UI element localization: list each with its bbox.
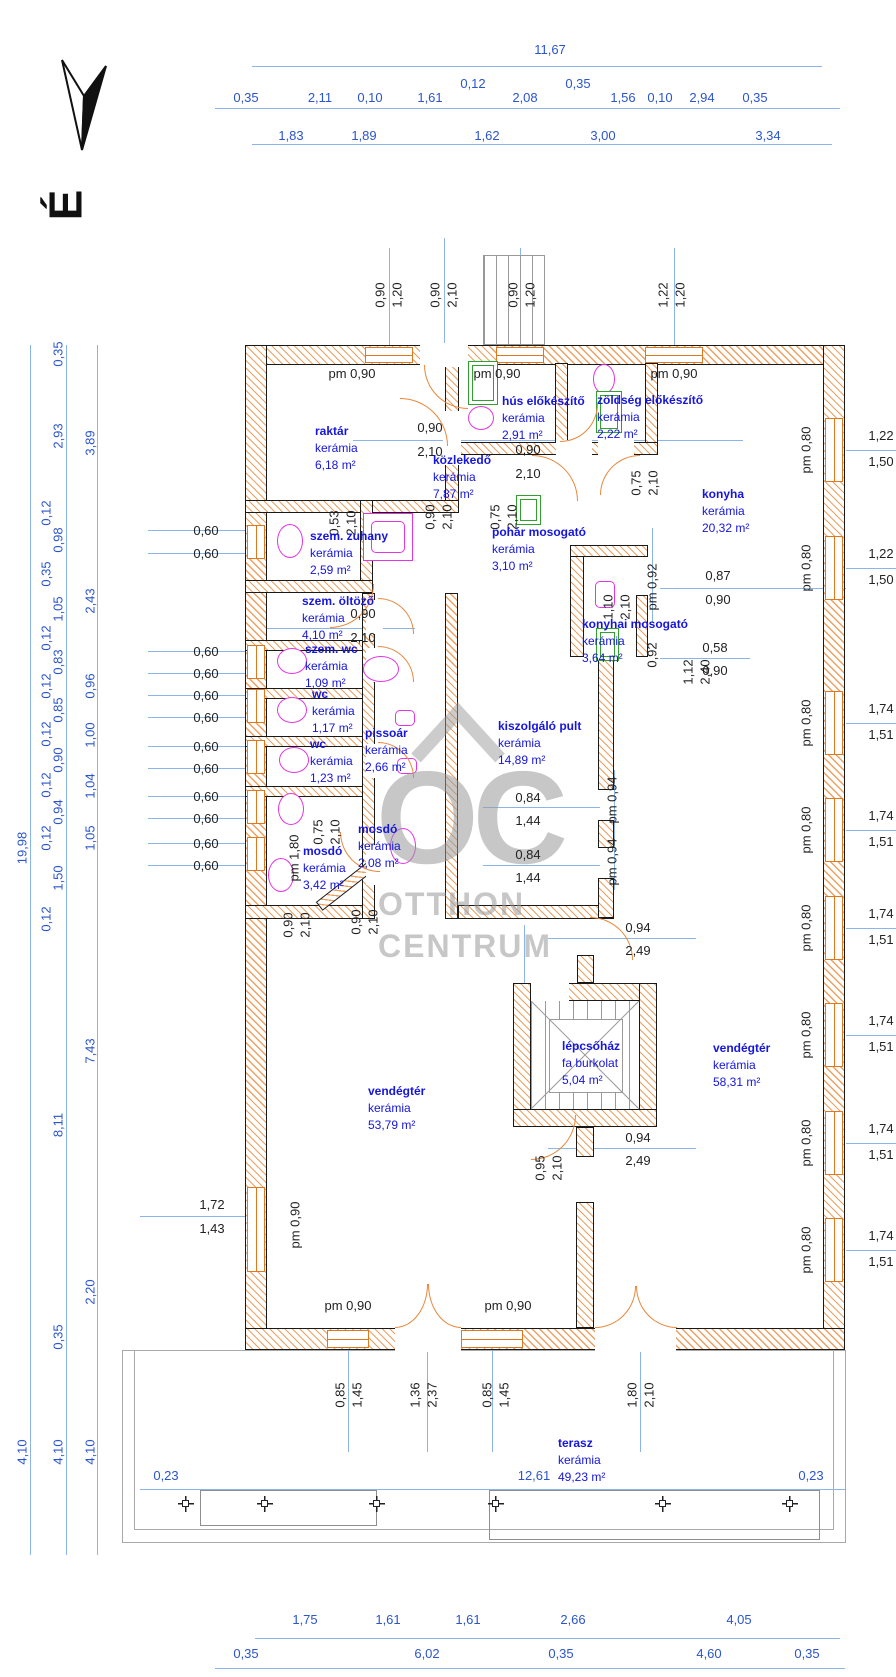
window-symbol (496, 347, 544, 363)
dim-label: 0,12 (39, 721, 54, 746)
opening-dim-label: 1,74 (868, 701, 893, 716)
room-material: kerámia (365, 742, 408, 759)
opening-dim-label: pm 0,94 (605, 777, 620, 824)
dim-label: 1,00 (83, 722, 98, 747)
opening-dim-label: 0,60 (193, 666, 218, 681)
dim-label: 1,05 (83, 825, 98, 850)
room-area: 1,17 m² (312, 720, 355, 737)
room-material: kerámia (305, 658, 358, 675)
dim-line (548, 1148, 696, 1149)
opening-dim-label: 0,60 (193, 739, 218, 754)
window-symbol (825, 896, 843, 960)
sanitary-fixture-icon (279, 747, 309, 773)
opening-dim-label: 0,90 (705, 592, 730, 607)
dim-label: 0,94 (51, 799, 66, 824)
dim-line (140, 1489, 846, 1490)
dim-label: 4,10 (15, 1439, 30, 1464)
opening-dim-label: 1,74 (868, 906, 893, 921)
room-area: 2,66 m² (365, 759, 408, 776)
window-symbol (825, 1218, 843, 1282)
room-label: wc kerámia 1,17 m² (312, 686, 355, 737)
dim-label: 0,12 (460, 76, 485, 91)
opening-dim-label: 0,60 (193, 688, 218, 703)
dim-label: 0,12 (39, 825, 54, 850)
room-label: zöldség előkészítő kerámia 2,22 m² (597, 392, 703, 443)
room-label: vendégtér kerámia 53,79 m² (368, 1083, 425, 1134)
dim-label: 0,83 (51, 649, 66, 674)
north-arrow-icon (48, 52, 118, 162)
dim-label: 2,66 (560, 1612, 585, 1627)
dim-label: 3,00 (590, 128, 615, 143)
opening-dim-label: pm 0,80 (799, 1012, 814, 1059)
opening-dim-label: 1,45 (350, 1382, 365, 1407)
opening-dim-label: 0,90 (515, 442, 540, 457)
column-marker-icon (257, 1496, 273, 1512)
room-material: kerámia (713, 1057, 770, 1074)
door-swing-icon (378, 646, 414, 682)
opening-dim-label: 0,84 (515, 790, 540, 805)
window-symbol (461, 1330, 523, 1348)
window-symbol (365, 347, 413, 363)
dim-line (846, 1143, 896, 1144)
dim-label: 0,85 (51, 697, 66, 722)
opening-dim-label: pm 0,92 (645, 564, 660, 611)
dim-line (660, 588, 846, 589)
dim-label: 0,10 (647, 90, 672, 105)
dim-label: 3,34 (755, 128, 780, 143)
dim-label: 2,20 (83, 1279, 98, 1304)
room-material: kerámia (492, 541, 586, 558)
dim-label: 0,35 (51, 1324, 66, 1349)
dim-label: 6,02 (414, 1646, 439, 1661)
room-name: közlekedő (433, 452, 491, 469)
opening-dim-label: 1,51 (868, 1147, 893, 1162)
dim-label: 0,23 (798, 1468, 823, 1483)
dim-line (97, 345, 98, 1555)
opening-dim-label: 2,10 (642, 1382, 657, 1407)
opening-dim-label: 1,36 (408, 1382, 423, 1407)
dim-label: 0,12 (39, 625, 54, 650)
opening-dim-label: 1,20 (390, 282, 405, 307)
dim-label: 1,56 (610, 90, 635, 105)
room-area: 20,32 m² (702, 520, 749, 537)
room-label: szem. öltöző kerámia 4,10 m² (302, 593, 374, 644)
dim-label: 11,67 (534, 42, 566, 57)
opening-dim-label: 0,60 (193, 761, 218, 776)
room-material: kerámia (312, 703, 355, 720)
room-label: pohár mosogató kerámia 3,10 m² (492, 524, 586, 575)
dim-label: 0,96 (83, 673, 98, 698)
dim-line (846, 1250, 896, 1251)
dim-label: 1,62 (474, 128, 499, 143)
room-material: kerámia (582, 633, 688, 650)
door-swing-icon (378, 598, 414, 634)
room-material: kerámia (502, 410, 585, 427)
dim-line (846, 723, 896, 724)
door-swing-icon (395, 1284, 428, 1328)
opening-dim-label: 1,74 (868, 1013, 893, 1028)
room-name: vendégtér (713, 1040, 770, 1057)
floor-plan-sheet: É OC OTTHON (0, 0, 896, 1677)
room-name: raktár (315, 423, 358, 440)
sanitary-fixture-icon (277, 648, 307, 674)
opening-dim-label: pm 0,90 (651, 366, 698, 381)
dim-label: 0,35 (51, 341, 66, 366)
opening-dim-label: 1,50 (868, 454, 893, 469)
opening-dim-label: 0,90 (281, 912, 296, 937)
opening-dim-label: 0,58 (702, 640, 727, 655)
room-material: kerámia (558, 1452, 605, 1469)
opening-dim-label: 0,60 (193, 546, 218, 561)
column-marker-icon (782, 1496, 798, 1512)
dim-line (255, 1638, 840, 1639)
opening-dim-label: pm 0,80 (799, 545, 814, 592)
opening-dim-label: 0,90 (423, 504, 438, 529)
room-material: kerámia (303, 860, 346, 877)
wall-segment (639, 983, 657, 1127)
opening-dim-label: 2,10 (550, 1155, 565, 1180)
dim-line (846, 568, 896, 569)
dim-label: 1,83 (278, 128, 303, 143)
opening-dim-label: pm 1,80 (287, 835, 302, 882)
window-symbol (247, 525, 265, 559)
dim-label: 1,61 (455, 1612, 480, 1627)
room-area: 2,08 m² (358, 855, 401, 872)
room-label: hús előkészítő kerámia 2,91 m² (502, 393, 585, 444)
opening-dim-label: pm 0,80 (799, 807, 814, 854)
dim-label: 1,50 (51, 865, 66, 890)
opening-dim-label: 1,44 (515, 870, 540, 885)
opening-dim-label: 0,90 (417, 420, 442, 435)
dim-label: 1,04 (83, 773, 98, 798)
dim-label: 0,35 (565, 76, 590, 91)
opening-dim-label: 2,10 (328, 819, 343, 844)
opening-dim-label: 2,10 (366, 909, 381, 934)
wall-segment (513, 983, 531, 1127)
window-symbol (247, 740, 265, 774)
dim-label: 0,12 (39, 906, 54, 931)
door-opening (595, 1326, 676, 1352)
opening-dim-label: 1,20 (523, 282, 538, 307)
opening-dim-label: 1,22 (868, 428, 893, 443)
room-area: 3,42 m² (303, 877, 346, 894)
column-marker-icon (488, 1496, 504, 1512)
room-material: kerámia (302, 610, 374, 627)
room-label: terasz kerámia 49,23 m² (558, 1435, 605, 1486)
opening-dim-label: pm 0,80 (799, 427, 814, 474)
opening-dim-label: 0,60 (193, 811, 218, 826)
room-area: 58,31 m² (713, 1074, 770, 1091)
room-material: fa burkolat (562, 1055, 620, 1072)
opening-dim-label: 0,60 (193, 523, 218, 538)
room-name: konyha (702, 486, 749, 503)
opening-dim-label: 0,85 (480, 1382, 495, 1407)
room-name: mosdó (303, 843, 346, 860)
room-name: lépcsőház (562, 1038, 620, 1055)
opening-dim-label: 2,37 (425, 1382, 440, 1407)
opening-dim-label: 1,22 (868, 546, 893, 561)
dim-line (215, 108, 840, 109)
room-name: pissoár (365, 725, 408, 742)
terrace-railing (200, 1490, 377, 1526)
opening-dim-label: pm 0,80 (799, 1120, 814, 1167)
opening-dim-label: pm 0,90 (325, 1298, 372, 1313)
dim-line (252, 144, 832, 145)
sanitary-fixture-icon (593, 364, 615, 394)
window-symbol (247, 689, 265, 723)
room-area: 1,23 m² (310, 770, 353, 787)
dim-line (846, 830, 896, 831)
dim-label: 1,61 (417, 90, 442, 105)
room-label: szem. wc kerámia 1,09 m² (305, 641, 358, 692)
dim-line (66, 345, 67, 1555)
opening-dim-label: 2,10 (440, 504, 455, 529)
opening-dim-label: 1,45 (497, 1382, 512, 1407)
opening-dim-label: 0,90 (349, 909, 364, 934)
opening-dim-label: 1,51 (868, 834, 893, 849)
room-name: mosdó (358, 821, 401, 838)
opening-dim-label: pm 0,80 (799, 905, 814, 952)
dim-label: 0,12 (39, 772, 54, 797)
room-label: pissoár kerámia 2,66 m² (365, 725, 408, 776)
window-symbol (247, 790, 265, 824)
opening-dim-label: 2,49 (625, 1153, 650, 1168)
opening-dim-label: 0,75 (629, 470, 644, 495)
opening-dim-label: 1,20 (673, 282, 688, 307)
north-label: É (38, 190, 92, 221)
opening-dim-label: 0,94 (625, 1130, 650, 1145)
dim-label: 1,89 (351, 128, 376, 143)
window-symbol (247, 837, 265, 871)
room-area: 2,91 m² (502, 427, 585, 444)
opening-dim-label: 1,74 (868, 1121, 893, 1136)
wall-segment (245, 345, 845, 365)
room-material: kerámia (702, 503, 749, 520)
room-material: kerámia (358, 838, 401, 855)
opening-dim-label: pm 0,94 (605, 839, 620, 886)
opening-dim-label: 1,50 (868, 572, 893, 587)
wall-segment (576, 1202, 594, 1328)
dim-label: 1,61 (375, 1612, 400, 1627)
opening-dim-label: 0,60 (193, 710, 218, 725)
dim-label: 0,35 (233, 90, 258, 105)
room-name: kiszolgáló pult (498, 718, 581, 735)
opening-dim-label: pm 0,90 (474, 366, 521, 381)
room-label: konyha kerámia 20,32 m² (702, 486, 749, 537)
opening-dim-label: 0,60 (193, 644, 218, 659)
dim-line (846, 928, 896, 929)
opening-dim-label: 0,84 (515, 847, 540, 862)
opening-dim-label: 2,10 (298, 912, 313, 937)
opening-dim-label: 1,80 (625, 1382, 640, 1407)
opening-dim-label: 0,87 (705, 568, 730, 583)
room-material: kerámia (315, 440, 358, 457)
room-area: 14,89 m² (498, 752, 581, 769)
opening-dim-label: 1,44 (515, 813, 540, 828)
window-symbol (825, 1003, 843, 1067)
opening-dim-label: 2,40 (698, 659, 713, 684)
opening-dim-label: 2,10 (515, 466, 540, 481)
door-opening (420, 343, 468, 367)
sanitary-fixture-icon (468, 406, 494, 430)
room-name: hús előkészítő (502, 393, 585, 410)
opening-dim-label: pm 0,90 (485, 1298, 532, 1313)
room-label: szem. zuhany kerámia 2,59 m² (310, 528, 388, 579)
opening-dim-label: 2,49 (625, 943, 650, 958)
room-name: szem. wc (305, 641, 358, 658)
room-name: wc (312, 686, 355, 703)
dim-label: 0,35 (548, 1646, 573, 1661)
opening-dim-label: 0,60 (193, 858, 218, 873)
dim-label: 1,05 (51, 596, 66, 621)
opening-dim-label: 1,51 (868, 1254, 893, 1269)
dim-label: 8,11 (51, 1113, 66, 1137)
room-label: wc kerámia 1,23 m² (310, 736, 353, 787)
room-area: 3,64 m² (582, 650, 688, 667)
dim-label: 7,43 (83, 1038, 98, 1063)
dim-label: 2,94 (689, 90, 714, 105)
window-symbol (825, 418, 843, 482)
door-opening (395, 1326, 461, 1352)
room-label: mosdó kerámia 2,08 m² (358, 821, 401, 872)
window-symbol (825, 691, 843, 755)
opening-dim-label: 0,94 (625, 920, 650, 935)
room-area: 49,23 m² (558, 1469, 605, 1486)
opening-dim-label: 1,22 (656, 282, 671, 307)
dim-label: 0,35 (39, 561, 54, 586)
room-name: vendégtér (368, 1083, 425, 1100)
dim-label: 19,98 (15, 832, 30, 865)
column-marker-icon (369, 1496, 385, 1512)
opening-dim-label: 1,43 (199, 1221, 224, 1236)
dim-line (846, 450, 896, 451)
window-symbol (825, 536, 843, 600)
opening-dim-label: 0,90 (373, 282, 388, 307)
watermark-line1: OTTHON (378, 888, 525, 920)
room-material: kerámia (310, 753, 353, 770)
room-label: lépcsőház fa burkolat 5,04 m² (562, 1038, 620, 1089)
sanitary-fixture-icon (278, 793, 304, 825)
dim-label: 0,12 (39, 500, 54, 525)
room-material: kerámia (498, 735, 581, 752)
window-symbol (645, 347, 703, 363)
dim-label: 0,12 (39, 673, 54, 698)
opening-dim-label: 0,60 (193, 789, 218, 804)
dim-line (252, 66, 822, 67)
room-material: kerámia (433, 469, 491, 486)
dim-label: 4,60 (696, 1646, 721, 1661)
door-swing-icon (595, 1286, 636, 1328)
opening-dim-label: 1,72 (199, 1197, 224, 1212)
opening-dim-label: 1,51 (868, 1039, 893, 1054)
room-material: kerámia (368, 1100, 425, 1117)
room-area: 7,87 m² (433, 486, 491, 503)
room-area: 53,79 m² (368, 1117, 425, 1134)
room-label: mosdó kerámia 3,42 m² (303, 843, 346, 894)
opening-dim-label: pm 0,90 (329, 366, 376, 381)
dim-line (140, 1216, 248, 1217)
dim-label: 0,35 (794, 1646, 819, 1661)
opening-dim-label: 0,90 (506, 282, 521, 307)
room-label: raktár kerámia 6,18 m² (315, 423, 358, 474)
room-material: kerámia (597, 409, 703, 426)
dim-label: 0,23 (153, 1468, 178, 1483)
door-opening (531, 981, 569, 1003)
column-marker-icon (655, 1496, 671, 1512)
opening-dim-label: 0,85 (333, 1382, 348, 1407)
dim-label: 0,98 (51, 527, 66, 552)
sanitary-fixture-icon (277, 697, 307, 723)
opening-dim-label: 1,74 (868, 808, 893, 823)
dim-label: 2,93 (51, 423, 66, 448)
room-name: szem. öltöző (302, 593, 374, 610)
room-label: kiszolgáló pult kerámia 14,89 m² (498, 718, 581, 769)
dim-label: 3,89 (83, 430, 98, 455)
window-symbol (825, 1111, 843, 1175)
window-symbol (327, 1330, 369, 1348)
opening-dim-label: 0,90 (428, 282, 443, 307)
opening-dim-label: pm 0,80 (799, 700, 814, 747)
room-name: zöldség előkészítő (597, 392, 703, 409)
room-name: terasz (558, 1435, 605, 1452)
dim-label: 4,05 (726, 1612, 751, 1627)
room-material: kerámia (310, 545, 388, 562)
door-swing-icon (531, 1115, 576, 1160)
door-swing-icon (636, 1286, 677, 1328)
wall-segment (598, 655, 614, 790)
dim-label: 0,35 (742, 90, 767, 105)
room-area: 5,04 m² (562, 1072, 620, 1089)
room-name: szem. zuhany (310, 528, 388, 545)
room-label: vendégtér kerámia 58,31 m² (713, 1040, 770, 1091)
dim-label: 2,43 (83, 588, 98, 613)
room-label: konyhai mosogató kerámia 3,64 m² (582, 616, 688, 667)
wall-segment (576, 1127, 594, 1157)
dim-label: 12,61 (518, 1468, 551, 1483)
window-symbol (247, 1187, 265, 1272)
opening-dim-label: 2,10 (646, 470, 661, 495)
window-symbol (247, 645, 265, 679)
opening-dim-label: 1,51 (868, 932, 893, 947)
room-name: pohár mosogató (492, 524, 586, 541)
opening-dim-label: 1,51 (868, 727, 893, 742)
dim-line (215, 1668, 845, 1669)
opening-dim-label: 2,10 (445, 282, 460, 307)
opening-dim-label: pm 0,80 (799, 1227, 814, 1274)
room-label: közlekedő kerámia 7,87 m² (433, 452, 491, 503)
opening-dim-label: 0,95 (533, 1155, 548, 1180)
dim-label: 0,35 (233, 1646, 258, 1661)
room-name: wc (310, 736, 353, 753)
dim-line (846, 1035, 896, 1036)
dim-label: 0,10 (357, 90, 382, 105)
opening-dim-label: 0,60 (193, 836, 218, 851)
room-area: 2,59 m² (310, 562, 388, 579)
opening-dim-label: 1,74 (868, 1228, 893, 1243)
room-area: 6,18 m² (315, 457, 358, 474)
dim-label: 1,75 (292, 1612, 317, 1627)
dim-label: 2,11 (308, 90, 332, 105)
dim-line (30, 345, 31, 1555)
window-symbol (825, 798, 843, 862)
door-swing-icon (428, 1284, 461, 1328)
dim-label: 4,10 (51, 1439, 66, 1464)
dim-label: 0,90 (51, 747, 66, 772)
opening-dim-label: 0,75 (311, 819, 326, 844)
room-area: 2,22 m² (597, 426, 703, 443)
column-marker-icon (178, 1496, 194, 1512)
opening-dim-label: pm 0,90 (288, 1202, 303, 1249)
